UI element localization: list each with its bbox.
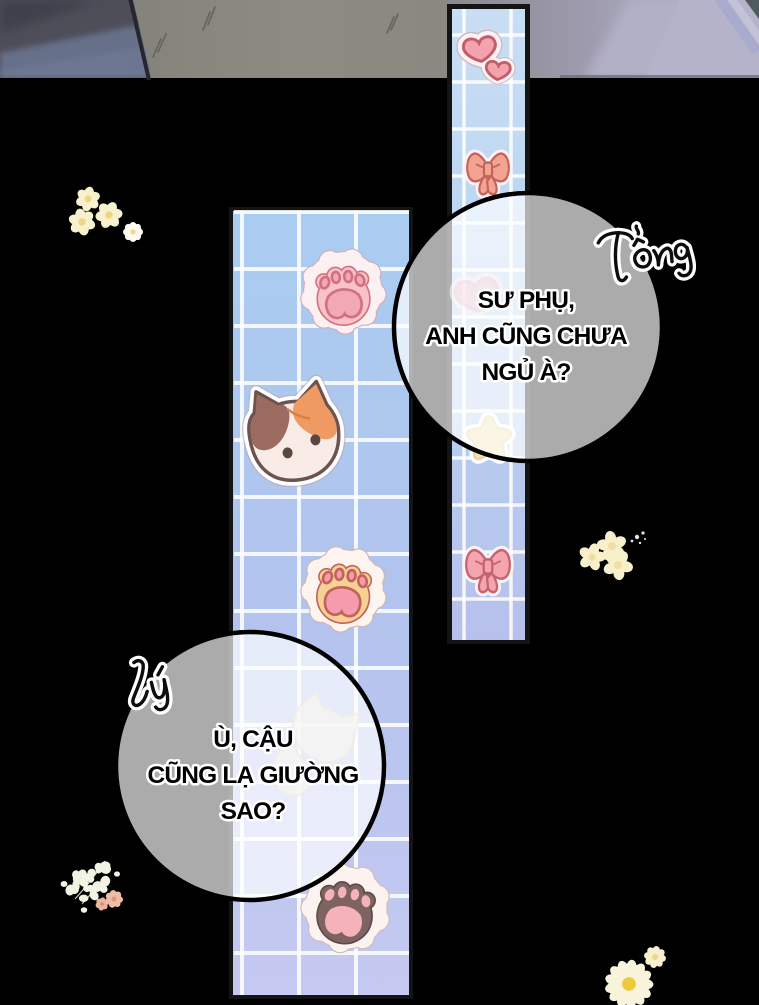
svg-text:CŨNG LẠ GIƯỜNG: CŨNG LẠ GIƯỜNG [147, 761, 358, 789]
svg-text:SƯ PHỤ,: SƯ PHỤ, [478, 287, 574, 314]
svg-text:Ù, CẬU: Ù, CẬU [213, 725, 293, 753]
svg-text:SAO?: SAO? [221, 798, 286, 825]
svg-text:NGỦ À?: NGỦ À? [481, 357, 570, 386]
svg-text:ANH CŨNG CHƯA: ANH CŨNG CHƯA [425, 322, 628, 350]
